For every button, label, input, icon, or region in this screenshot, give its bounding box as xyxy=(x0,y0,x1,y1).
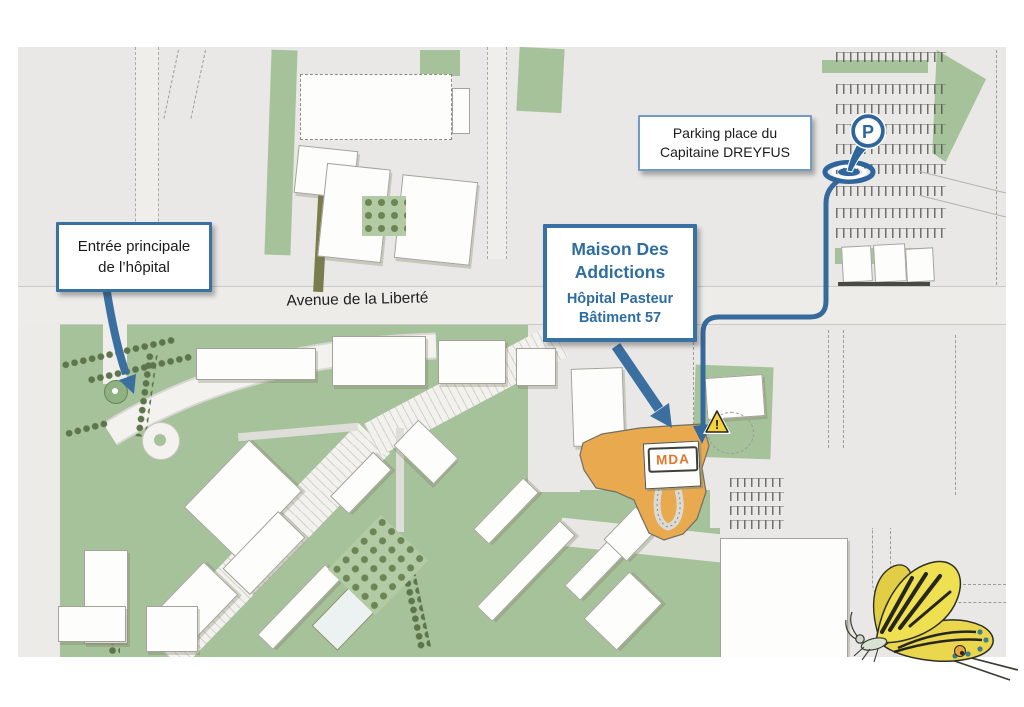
parking-row xyxy=(836,124,946,134)
dashed-path xyxy=(843,330,844,448)
parking-row xyxy=(730,520,784,529)
dashed-path xyxy=(828,330,829,448)
building xyxy=(394,174,478,265)
building xyxy=(300,74,452,140)
parking-row xyxy=(836,104,946,114)
building xyxy=(332,336,426,386)
dashed-path xyxy=(190,50,206,119)
dashed-road-corner xyxy=(890,528,1006,585)
campus-map: MDA ! P xyxy=(0,0,1024,707)
building xyxy=(146,606,198,652)
callout-mda-title: Maison Des Addictions xyxy=(571,238,668,284)
parking-row xyxy=(836,52,946,62)
building xyxy=(571,367,626,447)
parking-row xyxy=(730,492,784,501)
entrance-spot-dot xyxy=(112,388,118,394)
mda-building-tag: MDA xyxy=(648,446,699,473)
lawn-patch xyxy=(430,490,710,657)
parking-row xyxy=(730,506,784,515)
road xyxy=(487,47,507,259)
callout-parking-text: Parking place du Capitaine DREYFUS xyxy=(660,124,790,162)
building xyxy=(516,348,556,386)
building xyxy=(452,88,470,134)
building xyxy=(196,348,316,380)
dashed-loop xyxy=(708,412,754,454)
callout-entrance-text: Entrée principale de l’hôpital xyxy=(78,236,191,278)
parking-row xyxy=(730,478,784,487)
lawn-patch xyxy=(516,47,564,113)
building xyxy=(720,538,848,657)
callout-mda: Maison Des Addictions Hôpital Pasteur Bâ… xyxy=(543,224,697,342)
building xyxy=(873,243,907,283)
dashed-path xyxy=(693,337,694,445)
parking-row xyxy=(836,84,946,94)
parking-row xyxy=(836,144,946,154)
building-shadow xyxy=(838,282,930,286)
dashed-path xyxy=(163,50,179,119)
lawn-patch xyxy=(420,50,460,76)
parking-row xyxy=(836,186,946,196)
callout-entrance: Entrée principale de l’hôpital xyxy=(56,222,212,292)
parking-row xyxy=(836,208,946,218)
lawn-patch xyxy=(264,50,297,256)
building xyxy=(841,245,873,283)
dashed-path xyxy=(996,50,997,285)
callout-parking: Parking place du Capitaine DREYFUS xyxy=(638,115,812,171)
building xyxy=(905,247,935,282)
parking-row xyxy=(836,228,946,238)
dashed-path xyxy=(955,335,956,495)
road xyxy=(18,322,60,657)
map-canvas xyxy=(18,47,1006,657)
building xyxy=(58,606,126,642)
garden xyxy=(362,196,406,236)
roundabout-center xyxy=(154,434,166,446)
callout-mda-subtitle: Hôpital Pasteur Bâtiment 57 xyxy=(567,290,673,328)
building xyxy=(438,340,506,384)
